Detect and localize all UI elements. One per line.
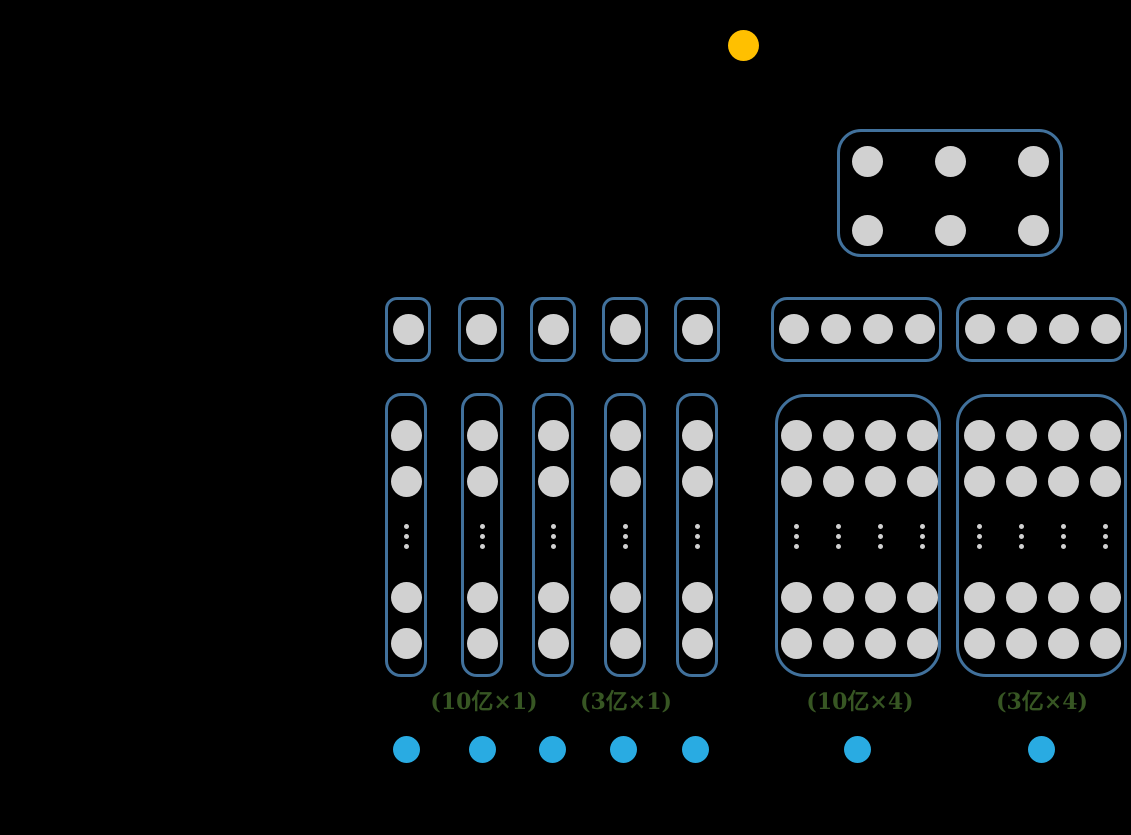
- ellipsis-dot: [480, 544, 485, 549]
- neuron-dot: [391, 466, 422, 497]
- ellipsis-dot: [878, 534, 883, 539]
- neuron-dot: [1091, 314, 1121, 344]
- ellipsis-dot: [1061, 544, 1066, 549]
- neuron-dot: [682, 314, 713, 345]
- input-token-dot: [539, 736, 566, 763]
- ellipsis-dot: [1103, 534, 1108, 539]
- neuron-dot: [779, 314, 809, 344]
- neuron-dot: [907, 466, 938, 497]
- ellipsis-dot: [623, 544, 628, 549]
- input-token-dot: [1028, 736, 1055, 763]
- ellipsis-dot: [623, 524, 628, 529]
- ellipsis-dot: [794, 524, 799, 529]
- ellipsis-dot: [551, 524, 556, 529]
- ellipsis-dot: [794, 544, 799, 549]
- neuron-dot: [467, 582, 498, 613]
- neuron-dot: [1006, 582, 1037, 613]
- neuron-dot: [781, 420, 812, 451]
- ellipsis-dot: [1019, 544, 1024, 549]
- neuron-dot: [1049, 314, 1079, 344]
- neuron-dot: [964, 582, 995, 613]
- neuron-dot: [965, 314, 995, 344]
- neuron-dot: [467, 628, 498, 659]
- parameter-count-label: (10亿×4): [806, 684, 913, 716]
- neuron-dot: [905, 314, 935, 344]
- neuron-dot: [1048, 582, 1079, 613]
- ellipsis-dot: [404, 524, 409, 529]
- ellipsis-dot: [920, 534, 925, 539]
- ellipsis-dot: [1103, 544, 1108, 549]
- neuron-dot: [467, 420, 498, 451]
- neuron-dot: [391, 628, 422, 659]
- ellipsis-dot: [878, 524, 883, 529]
- neuron-dot: [907, 628, 938, 659]
- neuron-dot: [781, 628, 812, 659]
- neuron-dot: [393, 314, 424, 345]
- neuron-dot: [907, 420, 938, 451]
- neuron-dot: [610, 420, 641, 451]
- neuron-dot: [1090, 466, 1121, 497]
- neuron-dot: [863, 314, 893, 344]
- neuron-dot: [865, 628, 896, 659]
- neuron-dot: [467, 466, 498, 497]
- neuron-dot: [1090, 628, 1121, 659]
- neuron-dot: [1090, 420, 1121, 451]
- ellipsis-dot: [551, 544, 556, 549]
- neuron-dot: [610, 628, 641, 659]
- model-ensemble-diagram: (10亿×1)(3亿×1)(10亿×4)(3亿×4): [0, 0, 1131, 835]
- neuron-dot: [781, 466, 812, 497]
- neuron-dot: [682, 582, 713, 613]
- parameter-count-label: (10亿×1): [430, 684, 537, 716]
- neuron-dot: [823, 582, 854, 613]
- neuron-dot: [1090, 582, 1121, 613]
- ellipsis-dot: [836, 544, 841, 549]
- neuron-dot: [391, 420, 422, 451]
- ellipsis-dot: [480, 524, 485, 529]
- ellipsis-dot: [920, 544, 925, 549]
- model-output-node: [728, 30, 759, 61]
- neuron-dot: [1018, 215, 1049, 246]
- ellipsis-dot: [404, 534, 409, 539]
- ellipsis-dot: [623, 534, 628, 539]
- ellipsis-dot: [920, 524, 925, 529]
- input-token-dot: [682, 736, 709, 763]
- neuron-dot: [781, 582, 812, 613]
- neuron-dot: [852, 146, 883, 177]
- neuron-dot: [610, 582, 641, 613]
- neuron-dot: [852, 215, 883, 246]
- neuron-dot: [682, 628, 713, 659]
- neuron-dot: [1048, 628, 1079, 659]
- neuron-dot: [865, 582, 896, 613]
- neuron-dot: [538, 420, 569, 451]
- ellipsis-dot: [794, 534, 799, 539]
- neuron-dot: [1006, 628, 1037, 659]
- ellipsis-dot: [836, 524, 841, 529]
- neuron-dot: [538, 314, 569, 345]
- neuron-dot: [1006, 420, 1037, 451]
- neuron-dot: [466, 314, 497, 345]
- parameter-count-label: (3亿×4): [996, 684, 1088, 716]
- ellipsis-dot: [695, 524, 700, 529]
- ellipsis-dot: [404, 544, 409, 549]
- neuron-dot: [823, 420, 854, 451]
- ellipsis-dot: [1019, 524, 1024, 529]
- ellipsis-dot: [836, 534, 841, 539]
- ellipsis-dot: [480, 534, 485, 539]
- ellipsis-dot: [1103, 524, 1108, 529]
- ellipsis-dot: [695, 534, 700, 539]
- ellipsis-dot: [1061, 534, 1066, 539]
- neuron-dot: [823, 628, 854, 659]
- neuron-dot: [821, 314, 851, 344]
- input-token-dot: [610, 736, 637, 763]
- neuron-dot: [935, 215, 966, 246]
- neuron-dot: [538, 466, 569, 497]
- neuron-dot: [935, 146, 966, 177]
- input-token-dot: [469, 736, 496, 763]
- neuron-dot: [907, 582, 938, 613]
- input-token-dot: [844, 736, 871, 763]
- neuron-dot: [682, 466, 713, 497]
- neuron-dot: [964, 466, 995, 497]
- neuron-dot: [538, 628, 569, 659]
- ellipsis-dot: [977, 534, 982, 539]
- neuron-dot: [1018, 146, 1049, 177]
- neuron-dot: [538, 582, 569, 613]
- ellipsis-dot: [1061, 524, 1066, 529]
- ellipsis-dot: [551, 534, 556, 539]
- ellipsis-dot: [977, 544, 982, 549]
- ellipsis-dot: [1019, 534, 1024, 539]
- neuron-dot: [682, 420, 713, 451]
- neuron-dot: [865, 466, 896, 497]
- neuron-dot: [1048, 420, 1079, 451]
- neuron-dot: [1007, 314, 1037, 344]
- neuron-dot: [964, 628, 995, 659]
- neuron-dot: [610, 314, 641, 345]
- neuron-dot: [1006, 466, 1037, 497]
- ellipsis-dot: [977, 524, 982, 529]
- parameter-count-label: (3亿×1): [580, 684, 672, 716]
- input-token-dot: [393, 736, 420, 763]
- neuron-dot: [964, 420, 995, 451]
- ellipsis-dot: [878, 544, 883, 549]
- neuron-dot: [1048, 466, 1079, 497]
- neuron-dot: [391, 582, 422, 613]
- ellipsis-dot: [695, 544, 700, 549]
- neuron-dot: [823, 466, 854, 497]
- neuron-dot: [610, 466, 641, 497]
- neuron-dot: [865, 420, 896, 451]
